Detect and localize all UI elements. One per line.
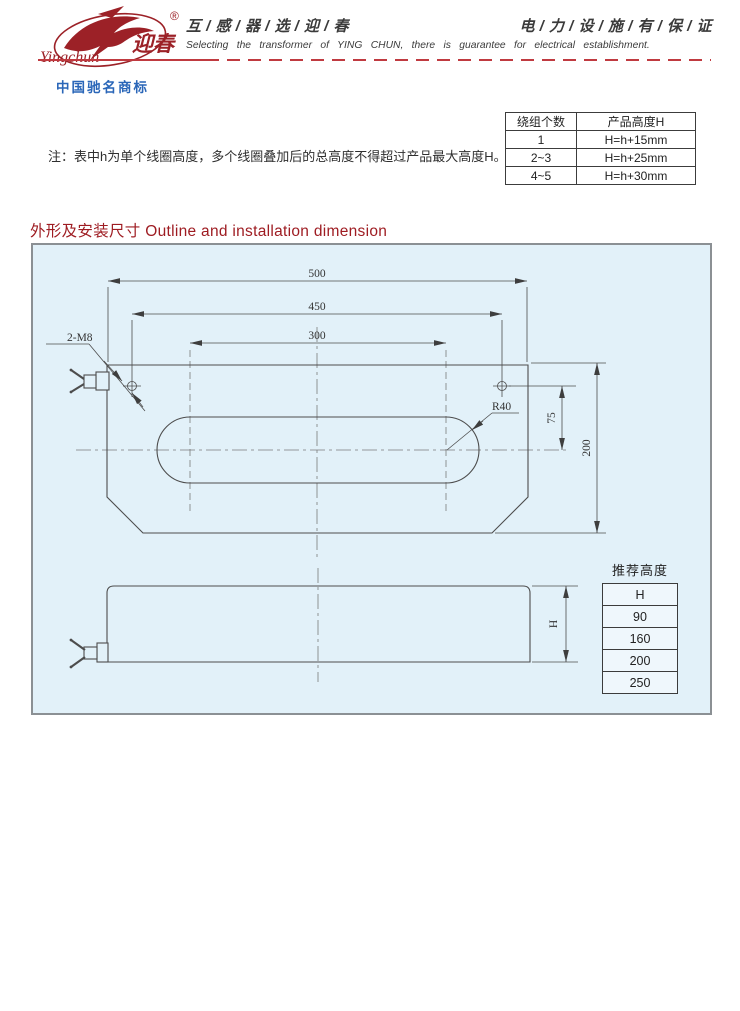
table-cell: 160 — [603, 628, 678, 650]
dim-200-label: 200 — [581, 439, 593, 457]
radius-callout-label: R40 — [492, 401, 511, 413]
slogan-en: Selecting the transformer of YING CHUN, … — [186, 40, 712, 51]
bolt-callout-label: 2-M8 — [67, 332, 93, 344]
table-cell: H=h+25mm — [577, 149, 696, 167]
table-row: 1 H=h+15mm — [506, 131, 696, 149]
table-cell: 4~5 — [506, 167, 577, 185]
slogan-cn-right: 电 / 力 / 设 / 施 / 有 / 保 / 证 — [519, 15, 712, 36]
dim-H-label: H — [548, 620, 560, 628]
note-text: 注：表中h为单个线圈高度，多个线圈叠加后的总高度不得超过产品最大高度H。 — [48, 146, 507, 165]
table-cell: H — [603, 584, 678, 606]
table-cell: H=h+30mm — [577, 167, 696, 185]
table-cell: 200 — [603, 650, 678, 672]
side-view: H — [70, 568, 578, 682]
slogan-cn-left: 互 / 感 / 器 / 选 / 迎 / 春 — [186, 15, 349, 36]
yingchun-logo: 迎春 Yingchun ® — [28, 4, 203, 76]
section-title: 外形及安装尺寸 Outline and installation dimensi… — [30, 219, 387, 241]
dim-300-label: 300 — [308, 330, 326, 342]
dim-450-label: 450 — [308, 301, 326, 313]
side-body-outline — [107, 586, 530, 662]
table-cell: 250 — [603, 672, 678, 694]
winding-col-header: 绕组个数 — [506, 113, 577, 131]
registered-mark: ® — [170, 9, 179, 23]
table-row: 160 — [603, 628, 678, 650]
table-cell: H=h+15mm — [577, 131, 696, 149]
header-underline-dashed — [206, 59, 711, 61]
table-row: 2~3 H=h+25mm — [506, 149, 696, 167]
dim-500-label: 500 — [308, 268, 326, 280]
table-row: 绕组个数 产品高度H — [506, 113, 696, 131]
brand-name-cn: 迎春 — [132, 32, 177, 56]
slogan-cn-row: 互 / 感 / 器 / 选 / 迎 / 春 电 / 力 / 设 / 施 / 有 … — [186, 15, 712, 36]
table-cell: 1 — [506, 131, 577, 149]
terminal-symbol-top — [70, 369, 109, 394]
table-row: 4~5 H=h+30mm — [506, 167, 696, 185]
catalog-page: 迎春 Yingchun ® 中国驰名商标 互 / 感 / 器 / 选 / 迎 /… — [0, 0, 740, 1011]
winding-height-table: 绕组个数 产品高度H 1 H=h+15mm 2~3 H=h+25mm 4~5 H… — [505, 112, 696, 185]
table-row: 250 — [603, 672, 678, 694]
recommended-height-table: H 90 160 200 250 — [602, 583, 678, 694]
top-view: 500 450 300 2-M8 R40 75 — [46, 268, 606, 560]
table-row: H — [603, 584, 678, 606]
table-row: 200 — [603, 650, 678, 672]
header-slogans: 互 / 感 / 器 / 选 / 迎 / 春 电 / 力 / 设 / 施 / 有 … — [186, 15, 712, 51]
terminal-symbol-side — [70, 639, 108, 669]
brand-name-script: Yingchun — [40, 49, 99, 66]
recommended-height-title: 推荐高度 — [603, 560, 677, 579]
table-cell: 2~3 — [506, 149, 577, 167]
dim-75-label: 75 — [546, 412, 558, 424]
header-underline-solid — [38, 59, 206, 61]
body-outline — [107, 365, 528, 533]
height-col-header: 产品高度H — [577, 113, 696, 131]
table-cell: 90 — [603, 606, 678, 628]
trademark-caption: 中国驰名商标 — [56, 76, 216, 96]
table-row: 90 — [603, 606, 678, 628]
